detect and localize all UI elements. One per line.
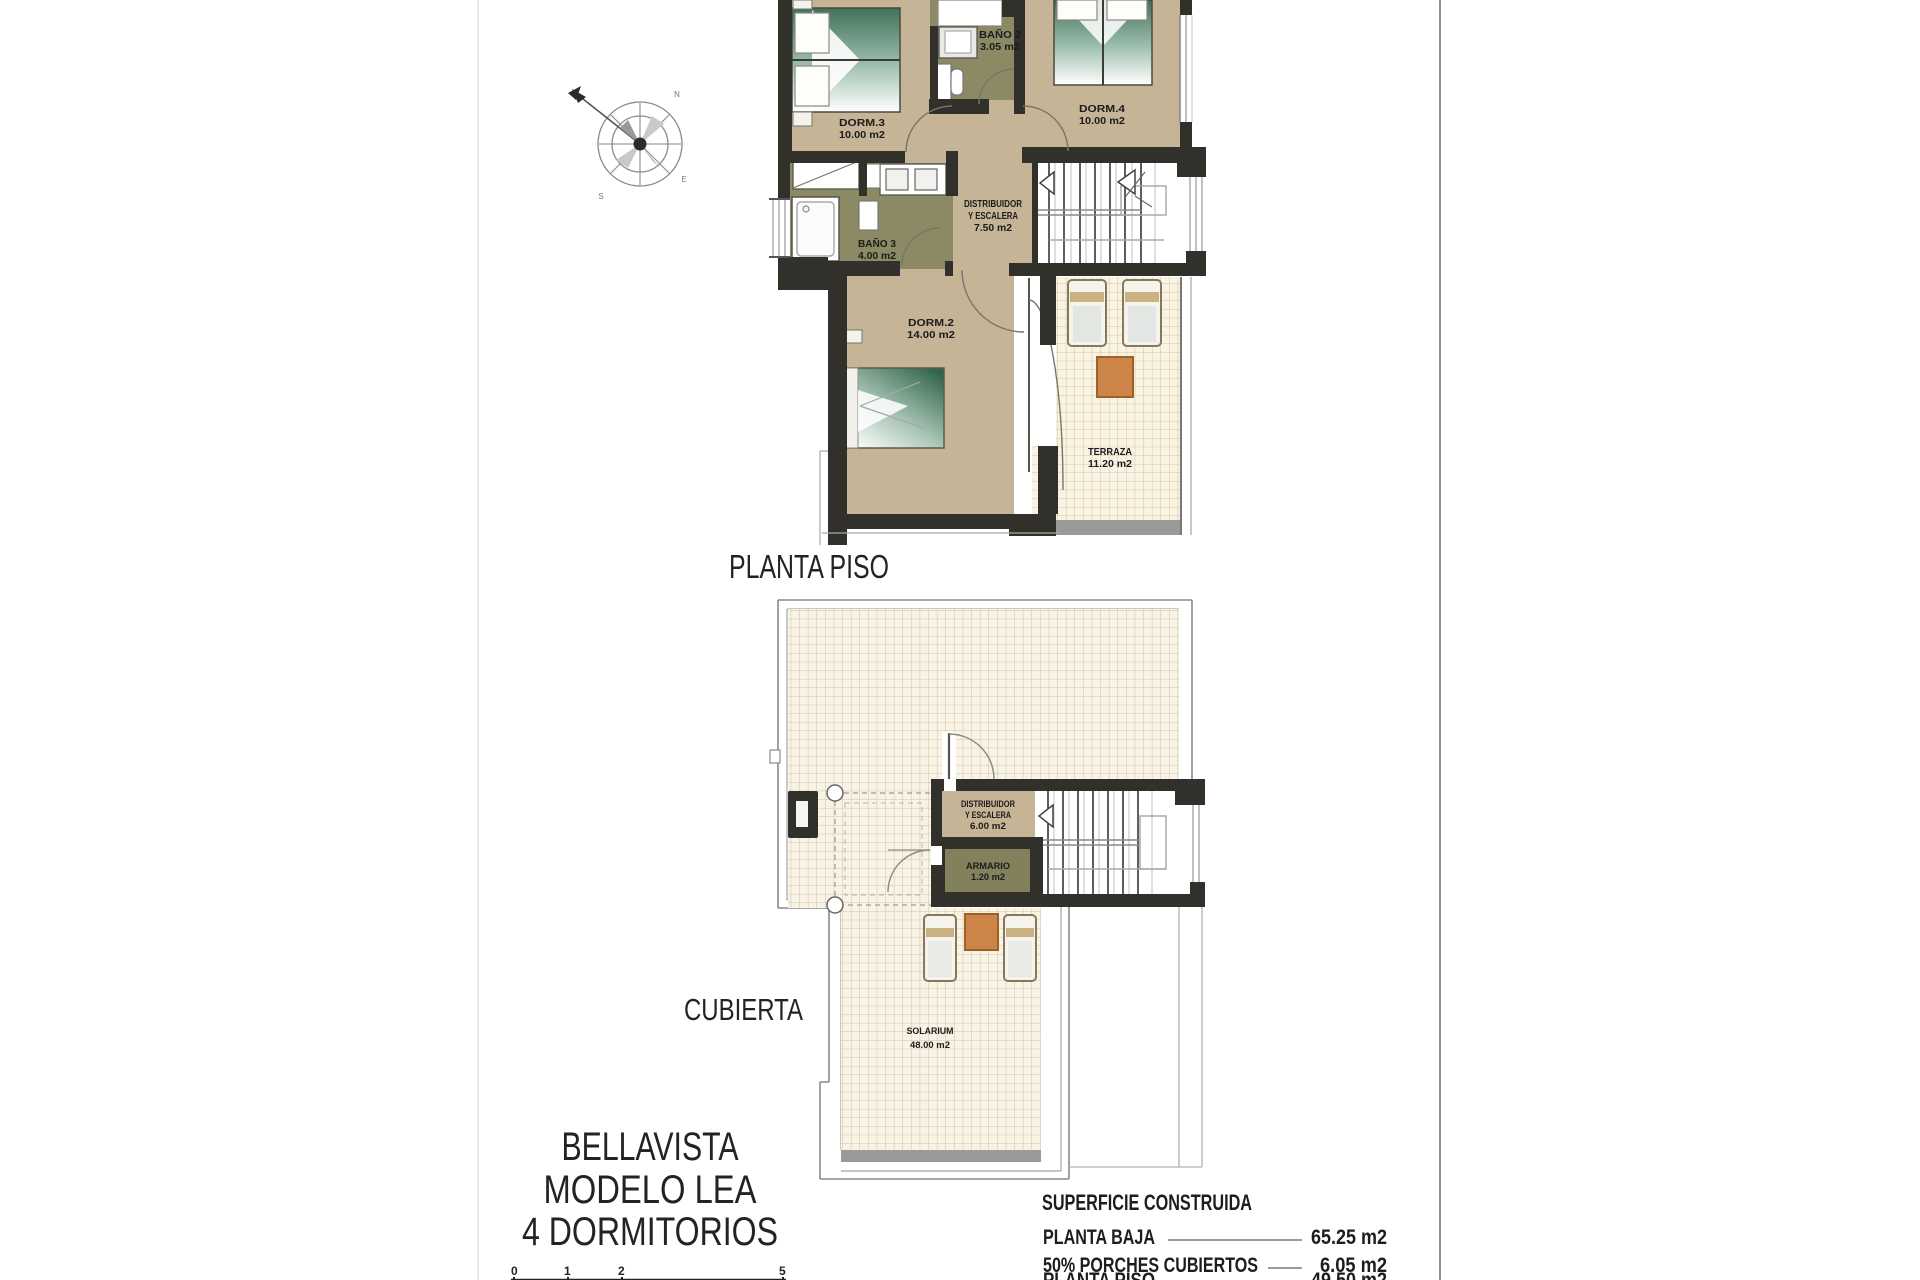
svg-text:10.00 m2: 10.00 m2 bbox=[1079, 116, 1125, 127]
svg-text:CUBIERTA: CUBIERTA bbox=[684, 992, 803, 1027]
svg-text:PLANTA PISO: PLANTA PISO bbox=[1043, 1269, 1155, 1280]
svg-text:DORM.2: DORM.2 bbox=[908, 318, 955, 329]
svg-text:DISTRIBUIDOR: DISTRIBUIDOR bbox=[964, 199, 1023, 210]
svg-text:6.00 m2: 6.00 m2 bbox=[970, 821, 1006, 832]
svg-text:Y ESCALERA: Y ESCALERA bbox=[968, 211, 1018, 222]
svg-text:48.00 m2: 48.00 m2 bbox=[910, 1040, 950, 1051]
svg-text:49.50 m2: 49.50 m2 bbox=[1311, 1269, 1387, 1280]
svg-text:ARMARIO: ARMARIO bbox=[966, 861, 1010, 872]
svg-text:SOLARIUM: SOLARIUM bbox=[907, 1026, 954, 1037]
svg-text:1: 1 bbox=[564, 1264, 571, 1278]
svg-text:0: 0 bbox=[511, 1264, 518, 1278]
svg-text:65.25 m2: 65.25 m2 bbox=[1311, 1226, 1387, 1249]
svg-text:DISTRIBUIDOR: DISTRIBUIDOR bbox=[961, 799, 1015, 810]
svg-text:N: N bbox=[674, 90, 680, 99]
svg-text:BAÑO 2: BAÑO 2 bbox=[979, 28, 1021, 41]
svg-text:7.50 m2: 7.50 m2 bbox=[974, 223, 1012, 234]
svg-text:11.20 m2: 11.20 m2 bbox=[1088, 459, 1132, 470]
svg-text:TERRAZA: TERRAZA bbox=[1088, 447, 1132, 458]
svg-text:MODELO LEA: MODELO LEA bbox=[544, 1168, 757, 1212]
svg-text:DORM.4: DORM.4 bbox=[1079, 104, 1126, 115]
svg-text:SUPERFICIE CONSTRUIDA: SUPERFICIE CONSTRUIDA bbox=[1042, 1190, 1252, 1215]
svg-text:5: 5 bbox=[779, 1264, 786, 1278]
svg-text:3.05 m2: 3.05 m2 bbox=[980, 42, 1020, 53]
svg-text:1.20 m2: 1.20 m2 bbox=[971, 872, 1005, 883]
svg-text:PLANTA PISO: PLANTA PISO bbox=[729, 548, 889, 585]
svg-text:E: E bbox=[681, 175, 686, 184]
svg-text:14.00 m2: 14.00 m2 bbox=[907, 330, 955, 341]
svg-text:BAÑO 3: BAÑO 3 bbox=[858, 237, 896, 250]
svg-text:10.00 m2: 10.00 m2 bbox=[839, 130, 885, 141]
svg-text:BELLAVISTA: BELLAVISTA bbox=[562, 1125, 739, 1169]
svg-text:PLANTA BAJA: PLANTA BAJA bbox=[1043, 1226, 1155, 1249]
svg-text:4 DORMITORIOS: 4 DORMITORIOS bbox=[522, 1210, 778, 1254]
svg-text:DORM.3: DORM.3 bbox=[839, 118, 886, 129]
svg-text:Y ESCALERA: Y ESCALERA bbox=[965, 810, 1011, 821]
svg-text:4.00 m2: 4.00 m2 bbox=[858, 251, 896, 262]
svg-text:2: 2 bbox=[618, 1264, 625, 1278]
svg-text:S: S bbox=[598, 192, 603, 201]
